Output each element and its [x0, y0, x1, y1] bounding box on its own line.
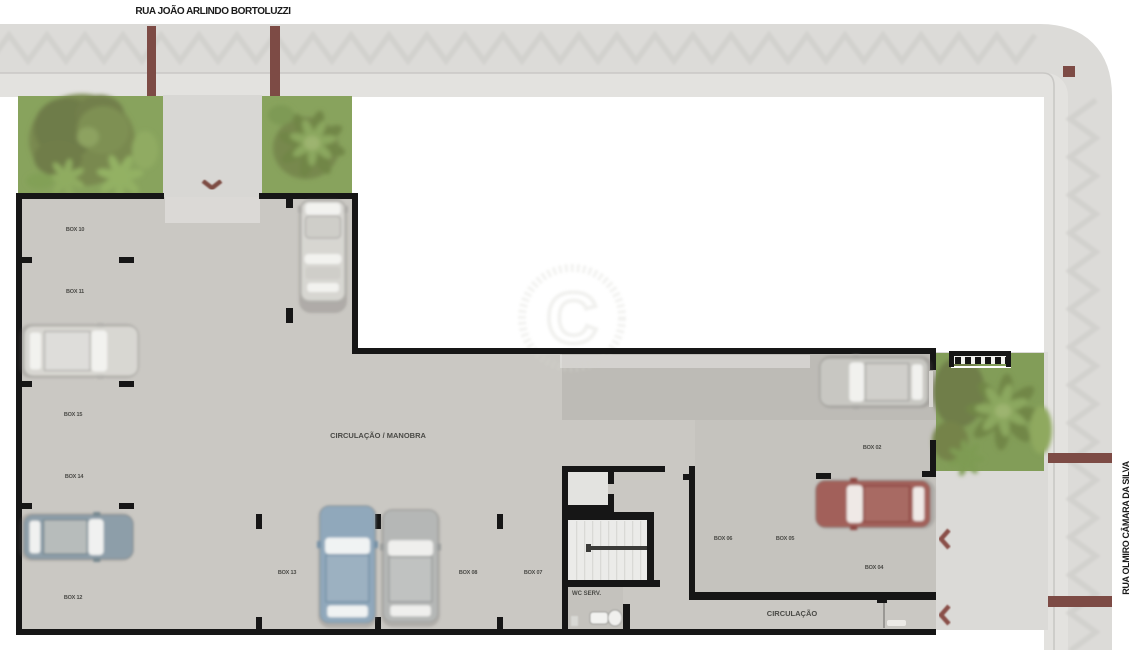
- svg-text:BOX 08: BOX 08: [459, 570, 478, 576]
- svg-text:BOX 15: BOX 15: [64, 412, 83, 418]
- svg-text:BOX 07: BOX 07: [524, 570, 543, 576]
- svg-text:BOX 10: BOX 10: [66, 227, 85, 233]
- svg-text:BOX 12: BOX 12: [64, 595, 83, 601]
- svg-text:BOX 13: BOX 13: [278, 570, 297, 576]
- svg-text:C: C: [546, 279, 598, 359]
- svg-text:BOX 04: BOX 04: [865, 565, 885, 571]
- svg-text:BOX 14: BOX 14: [65, 474, 85, 480]
- svg-text:BOX 05: BOX 05: [776, 536, 795, 542]
- svg-text:RUA OLMIRO CÂMARA DA SILVA: RUA OLMIRO CÂMARA DA SILVA: [1120, 460, 1131, 594]
- svg-text:BOX 02: BOX 02: [863, 445, 882, 451]
- svg-text:RUA JOÃO ARLINDO BORTOLUZZI: RUA JOÃO ARLINDO BORTOLUZZI: [135, 4, 291, 17]
- svg-text:BOX 11: BOX 11: [66, 289, 84, 295]
- svg-text:BOX 06: BOX 06: [714, 536, 733, 542]
- svg-text:WC SERV.: WC SERV.: [572, 591, 601, 597]
- svg-text:CIRCULAÇÃO / MANOBRA: CIRCULAÇÃO / MANOBRA: [330, 431, 426, 440]
- svg-text:CIRCULAÇÃO: CIRCULAÇÃO: [767, 609, 818, 618]
